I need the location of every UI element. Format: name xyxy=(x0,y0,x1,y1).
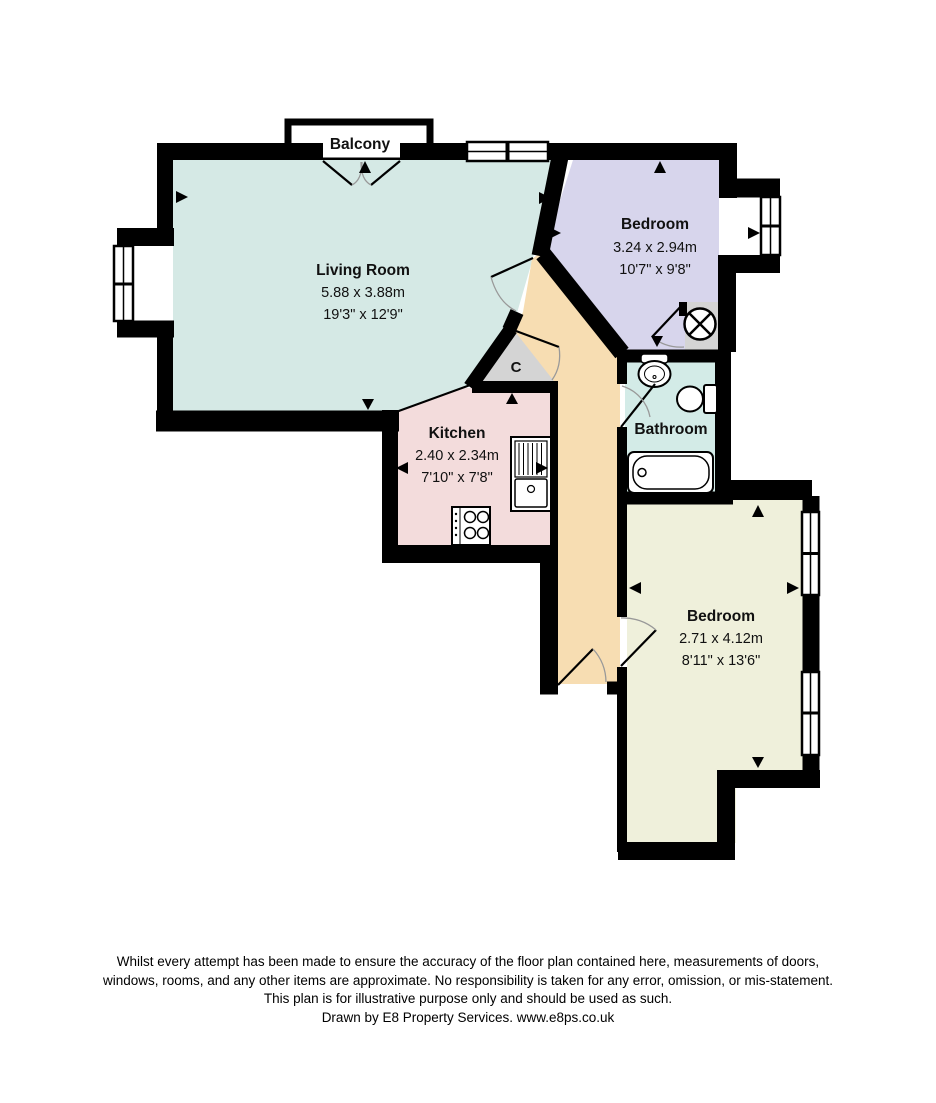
disclaimer-line-1: Whilst every attempt has been made to en… xyxy=(0,953,936,972)
toilet xyxy=(677,385,717,413)
bedroom-bottom-area xyxy=(627,500,803,843)
living-room-top-window xyxy=(467,142,548,161)
bedroom-top-label: Bedroom xyxy=(621,216,689,233)
window-recess xyxy=(719,197,762,255)
bedroom-top-window xyxy=(761,197,780,255)
credit-line: Drawn by E8 Property Services. www.e8ps.… xyxy=(0,1009,936,1028)
kitchen-imperial: 7'10" x 7'8" xyxy=(421,470,492,486)
kitchen-sink-unit xyxy=(511,437,551,511)
disclaimer-line-2: windows, rooms, and any other items are … xyxy=(0,972,936,991)
bedroom-bottom-window-upper xyxy=(802,512,819,595)
bedroom-bottom-label: Bedroom xyxy=(687,608,755,625)
kitchen-label: Kitchen xyxy=(429,425,486,442)
kitchen-metric: 2.40 x 2.34m xyxy=(415,448,499,464)
living-room-label: Living Room xyxy=(316,262,410,279)
bedroom-top-imperial: 10'7" x 9'8" xyxy=(619,262,690,278)
bedroom-bottom-metric: 2.71 x 4.12m xyxy=(679,631,763,647)
disclaimer-block: Whilst every attempt has been made to en… xyxy=(0,953,936,1027)
bedroom-bottom-imperial: 8'11" x 13'6" xyxy=(682,653,760,669)
extractor-symbol xyxy=(685,309,716,340)
bay-window xyxy=(114,246,133,321)
balcony-label: Balcony xyxy=(330,136,391,153)
kitchen-hob xyxy=(452,507,490,545)
bedroom-bottom-window-lower xyxy=(802,672,819,755)
bathroom-label: Bathroom xyxy=(634,421,707,438)
disclaimer-line-3: This plan is for illustrative purpose on… xyxy=(0,990,936,1009)
floor-plan-page: Balcony Living Room 5.88 x 3.88m 19'3" x… xyxy=(0,0,936,1103)
closet-label: C xyxy=(511,359,522,376)
floor-plan-drawing: Balcony Living Room 5.88 x 3.88m 19'3" x… xyxy=(0,0,936,950)
bathtub xyxy=(628,452,713,493)
bay-window-recess xyxy=(133,246,159,321)
bedroom-top-metric: 3.24 x 2.94m xyxy=(613,240,697,256)
living-room-metric: 5.88 x 3.88m xyxy=(321,285,405,301)
bathroom-sink xyxy=(639,354,671,387)
living-room-imperial: 19'3" x 12'9" xyxy=(323,307,403,323)
